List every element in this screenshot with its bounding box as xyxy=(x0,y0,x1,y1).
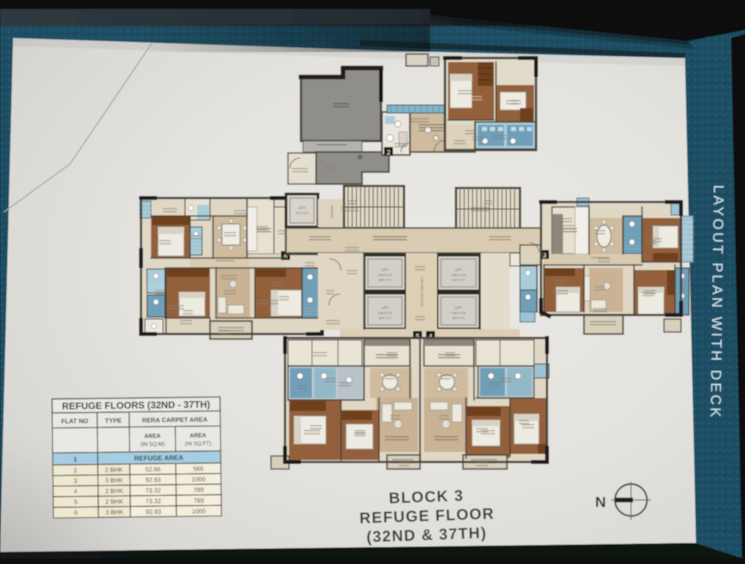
svg-text:1.98 X 2.13: 1.98 X 2.13 xyxy=(378,273,393,277)
svg-text:LIFT: LIFT xyxy=(298,206,306,210)
svg-text:FLAT NO: FLAT NO xyxy=(61,418,88,425)
svg-text:3 BHK: 3 BHK xyxy=(105,477,124,484)
svg-text:3: 3 xyxy=(74,478,78,485)
svg-text:AREA: AREA xyxy=(144,434,161,440)
svg-text:2.5 X 2.5: 2.5 X 2.5 xyxy=(296,211,308,215)
svg-text:N: N xyxy=(595,494,606,511)
svg-text:TYPE: TYPE xyxy=(105,418,123,425)
svg-text:2 BHK: 2 BHK xyxy=(105,488,124,495)
svg-text:(6'6" X 7'): (6'6" X 7') xyxy=(452,316,464,320)
svg-text:1.98 X 2.13: 1.98 X 2.13 xyxy=(451,311,466,315)
svg-text:789: 789 xyxy=(194,498,205,505)
svg-text:1: 1 xyxy=(73,456,77,463)
svg-text:73.32: 73.32 xyxy=(145,498,161,505)
svg-text:LIFT: LIFT xyxy=(381,268,389,272)
svg-text:566: 566 xyxy=(193,466,204,473)
svg-text:2: 2 xyxy=(387,149,391,156)
svg-text:1.98 X 2.13: 1.98 X 2.13 xyxy=(451,273,466,277)
svg-text:92.93: 92.93 xyxy=(146,509,162,516)
svg-text:92.93: 92.93 xyxy=(145,477,161,484)
svg-text:6: 6 xyxy=(74,510,78,517)
svg-text:3 BHK: 3 BHK xyxy=(105,509,124,516)
svg-text:LIFT: LIFT xyxy=(455,268,463,272)
svg-text:(IN SQ.FT): (IN SQ.FT) xyxy=(185,441,212,447)
svg-text:1000: 1000 xyxy=(192,476,206,483)
svg-text:(6'6" X 7'): (6'6" X 7') xyxy=(452,278,464,282)
svg-text:LIFT: LIFT xyxy=(381,306,389,310)
svg-text:LIFT: LIFT xyxy=(455,306,463,310)
svg-text:REFUGE AREA: REFUGE AREA xyxy=(134,455,183,463)
svg-text:2 BHK: 2 BHK xyxy=(105,467,124,474)
svg-text:73.32: 73.32 xyxy=(145,487,161,494)
svg-text:2.05 WIDE PASSAGE: 2.05 WIDE PASSAGE xyxy=(420,277,424,306)
svg-text:3: 3 xyxy=(543,252,547,259)
svg-text:BLOCK 3: BLOCK 3 xyxy=(389,488,465,508)
svg-text:789: 789 xyxy=(193,487,204,494)
svg-text:PASSAGE: PASSAGE xyxy=(330,205,334,218)
svg-text:4: 4 xyxy=(74,488,78,495)
svg-text:1.98 X 2.13: 1.98 X 2.13 xyxy=(378,311,393,315)
svg-text:2: 2 xyxy=(74,467,78,474)
svg-text:5: 5 xyxy=(74,499,78,506)
svg-text:RERA CARPET AREA: RERA CARPET AREA xyxy=(142,417,208,425)
svg-text:52.66: 52.66 xyxy=(145,466,161,473)
svg-text:(6'6" X 7'): (6'6" X 7') xyxy=(379,316,391,320)
svg-text:LAYOUT PLAN WITH DECK: LAYOUT PLAN WITH DECK xyxy=(707,185,726,420)
svg-text:(IN SQ.M): (IN SQ.M) xyxy=(140,442,165,448)
svg-text:2 BHK: 2 BHK xyxy=(105,499,124,506)
svg-text:1000: 1000 xyxy=(192,508,206,515)
svg-text:(6'6" X 7'): (6'6" X 7') xyxy=(379,278,391,282)
svg-text:AREA: AREA xyxy=(190,433,207,439)
svg-text:REFUGE FLOORS (32ND - 37TH): REFUGE FLOORS (32ND - 37TH) xyxy=(62,400,210,413)
